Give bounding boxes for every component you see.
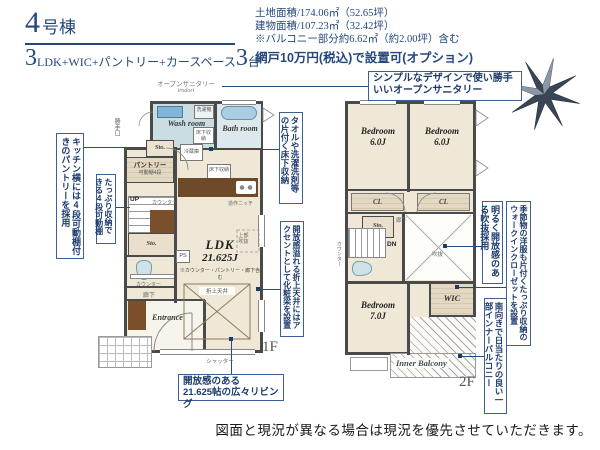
bedroom2-name: Bedroom [414, 126, 470, 137]
disclaimer: 図面と現況が異なる場合は現況を優先させていただきます。 [190, 419, 592, 439]
plan-type-line: 3 LDK+WIC+パントリー+カースペース 3 台 [25, 46, 260, 70]
ldk-size: 21.625J [185, 252, 255, 265]
bedroom1-name: Bedroom [350, 126, 406, 137]
building-title: 4 号棟 [25, 8, 76, 38]
callout-living: 開放感のある 21.625帖の広々リビング [178, 374, 284, 401]
wall [429, 315, 475, 317]
stairs-2f [348, 228, 386, 258]
counter2-shape [130, 274, 175, 279]
wall [345, 212, 476, 214]
title-underline [25, 43, 235, 45]
hallway-1f-label: 廊下 [143, 290, 155, 299]
building-number: 4 [25, 8, 40, 38]
wash-room-label: Wash room [164, 120, 209, 128]
inner-balcony [408, 317, 476, 355]
void-label: 吹抜 [432, 250, 443, 258]
leader-dot [209, 147, 213, 151]
eaves-strip [350, 357, 388, 371]
area-info: 土地面積/174.06㎡（52.65坪） 建物面積/107.23㎡（32.42坪… [255, 7, 460, 46]
floor-storage-wash-box: 床下収納 [193, 127, 214, 144]
niche-label: 造作ニッチ [228, 200, 260, 207]
wall [407, 284, 410, 355]
leader-line [459, 287, 506, 288]
sanitary-brand: irodori [150, 88, 222, 95]
callout-ceiling-beam: 開放感溢れる折上天井にはアクセントとして化粧梁を設置 [280, 221, 304, 337]
wall [203, 300, 206, 353]
entrance-label: Entrance [140, 313, 195, 322]
leader-dot [443, 244, 447, 248]
wall [345, 189, 476, 191]
bedroom1-label-block: Bedroom 6.0J [350, 126, 406, 148]
storage2-label: Sto. [129, 234, 174, 254]
option-note: 網戸10万円(税込)で設置可(オプション) [255, 47, 473, 66]
pantry-label: パントリー [127, 158, 173, 170]
upper-void-label: 上部吹抜 [238, 233, 249, 245]
wall [214, 104, 217, 148]
leader-dot [455, 285, 459, 289]
counter1-label: カウンター [152, 199, 177, 206]
callout-wic: 季節物の洋服も片付くたっぷり収納のウォークインクローゼットを設置 [506, 201, 531, 346]
building-area: 建物面積/107.23㎡（32.42坪） [255, 20, 460, 33]
leader-dot [458, 354, 462, 358]
vanity-sink [157, 106, 183, 118]
inner-balcony-label: Inner Balcony [394, 358, 449, 368]
wall [345, 281, 476, 284]
callout-open-sanitary: シンプルなデザインで使い勝手 いいオープンサニタリー [368, 71, 522, 101]
stairs-lower-steps [150, 210, 175, 233]
floor-storage-wash-label: 床下収納 [194, 128, 213, 142]
leader-line [213, 149, 279, 150]
building-suffix: 号棟 [40, 19, 76, 38]
bedroom3-name: Bedroom [350, 300, 406, 311]
leader-dot [256, 287, 260, 291]
leader-line [260, 289, 280, 290]
window [258, 215, 265, 247]
plan-count-1: 3 [25, 46, 37, 70]
callout-open-sanitary-line2: いいオープンサニタリー [373, 85, 517, 97]
land-area: 土地面積/174.06㎡（52.65坪） [255, 7, 460, 20]
plan-body: LDK+WIC+パントリー+カースペース [37, 56, 236, 70]
wic-room: WIC [431, 284, 473, 315]
flyer-page: 4 号棟 3 LDK+WIC+パントリー+カースペース 3 台 土地面積/174… [0, 0, 600, 450]
counter2-label: カウンター [136, 281, 161, 288]
closet2: CL [417, 193, 470, 211]
dn-label: DN [387, 241, 396, 248]
ldk-note: ※カウンター・パントリー・廊下含む [178, 267, 262, 281]
storage1-room: Sto. [146, 140, 174, 157]
wall [174, 147, 177, 303]
wall [125, 255, 175, 257]
washer-label: 洗濯機 [195, 106, 213, 113]
floor2-label: 2F [459, 374, 475, 391]
closet1-label: CL [352, 194, 403, 210]
counter-2f-label: カウンター [335, 241, 341, 266]
bedroom1-size: 6.0J [350, 137, 406, 148]
leader-line [222, 86, 368, 87]
callout-void: 明るく開放感のある吹抜採用 [482, 201, 503, 284]
closet1: CL [351, 193, 404, 211]
leader-line [462, 356, 484, 357]
floor-storage-kitchen-label: 床下収納 [208, 165, 230, 173]
stove [236, 181, 256, 194]
callout-living-line2: 21.625帖の広々リビング [183, 387, 279, 410]
callout-living-line1: 開放感のある [183, 376, 279, 387]
closet2-label: CL [418, 194, 469, 210]
callout-floor-storage: タオルや洗濯洗剤等の片付く床下収納 [279, 112, 303, 204]
leader-line [447, 246, 482, 247]
fridge-box: 冷蔵庫 [180, 144, 203, 161]
bathtub [221, 106, 257, 120]
bath-room-label: Bath room [221, 124, 259, 133]
wall [125, 299, 205, 301]
balcony-note: ※バルコニー部分約6.62㎡（約2.00坪）含む [255, 33, 460, 46]
leader-line [84, 147, 124, 148]
callout-open-sanitary-line1: シンプルなデザインで使い勝手 [373, 73, 517, 85]
shutter-label: シャッター [200, 357, 240, 365]
sanitary-caption: オープンサニタリー irodori [150, 81, 222, 95]
window [258, 300, 265, 332]
sanitary-name: オープンサニタリー [150, 81, 222, 88]
side-door-label: 勝手口 [112, 118, 119, 136]
bedroom3-size: 7.0J [350, 311, 406, 322]
bedroom3-label-block: Bedroom 7.0J [350, 300, 406, 322]
pantry-room: パントリー 可動棚4段 [126, 157, 174, 183]
shutter-window [160, 349, 255, 355]
hallway-2f-label: 廊下 [396, 216, 407, 224]
leader-dot [229, 337, 233, 341]
entrance-porch [98, 336, 152, 368]
floor1-label: 1F [262, 339, 278, 356]
leader-line [231, 341, 232, 374]
storage2-room: Sto. [128, 233, 175, 256]
leader-line [116, 207, 130, 208]
pantry-shelf-label: 可動棚4段 [127, 170, 173, 176]
wall [407, 101, 410, 192]
fridge-label: 冷蔵庫 [181, 145, 202, 160]
plan-count-2: 3 [236, 46, 248, 70]
bedroom2-label-block: Bedroom 6.0J [414, 126, 470, 148]
coffered-ceiling-label: 折上天井 [199, 287, 235, 295]
callout-pantry: キッチン横には4段可動棚付きのパントリーを採用 [56, 133, 84, 259]
callout-shelf: たっぷり収納できる4段可動棚 [96, 174, 116, 244]
wall [429, 284, 431, 317]
callout-balcony: 南向きで日当たりの良い一部インナーバルコニー [484, 298, 507, 414]
washer-box: 洗濯機 [194, 105, 214, 119]
up-label: UP [130, 196, 139, 203]
void-room [405, 214, 473, 280]
wic-label: WIC [431, 284, 473, 312]
storage1-label: Sto. [147, 141, 173, 155]
window [222, 100, 256, 105]
bedroom2-size: 6.0J [414, 137, 470, 148]
